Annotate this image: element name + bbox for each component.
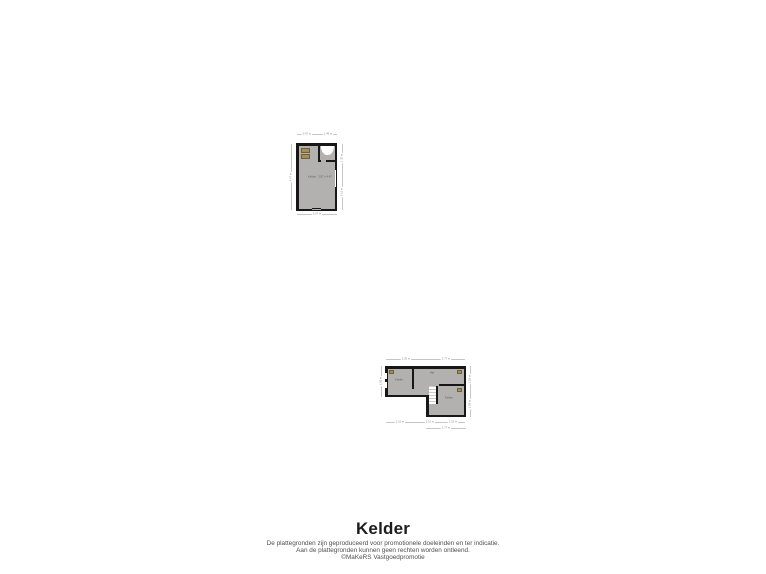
page-title: Kelder [0,520,766,538]
room-name: Kelder [308,175,316,178]
upper-plan-outline: Kelder 2.57 x 4.47 [296,143,337,211]
dimension-line [386,359,465,360]
page: 0.97 m 1.49 m 4.47 m 1.32 m 3.15 m [0,0,766,574]
disclaimer-line-2: Aan de plattegronden kunnen geen rechten… [0,547,766,554]
interior-wall [412,369,414,389]
interior-wall [326,160,335,162]
dimension-label: 1.52 m [448,421,459,424]
interior-wall [318,160,321,162]
dimension-label: 3.77 m [441,426,452,429]
dimension-label: 3.15 m [341,187,344,198]
dimension-label: 2.55 m [401,358,412,361]
interior-wall [436,386,439,404]
window [335,170,337,187]
fixture-icon [457,388,462,392]
fixture-icon [457,370,462,374]
dimension-label: 3.77 m [441,358,452,361]
room-label: Hal [430,371,434,374]
room-label: Kelder [445,397,453,400]
dimension-label: 4.47 m [290,172,293,183]
room-size-label: 2.57 x 4.47 [318,175,332,178]
interior-wall [439,384,464,387]
window [385,382,387,388]
disclaimer-line-3: ©MaKeRS Vastgoedpromotie [0,554,766,561]
dimension-label: 0.97 m [302,133,313,136]
appliance-icon [301,154,310,160]
appliance-icon [301,148,310,154]
room-label: Kelder [308,175,316,178]
dimension-label: 1.10 m [395,421,406,424]
disclaimer: De plattegronden zijn geproduceerd voor … [0,540,766,561]
upper-plan-floor: Kelder 2.57 x 4.47 [299,146,335,209]
fixture-icon [389,370,394,374]
room-size: 2.57 x 4.47 [318,175,332,178]
interior-wall [318,146,320,161]
dimension-label: 1.55 m [380,376,383,387]
dimension-label: 1.08 m [469,399,472,410]
dimension-label: 2.10 m [425,421,436,424]
dimension-label: 2.57 m [312,213,323,216]
window [385,373,387,379]
lower-plan-floor-band [388,369,464,395]
dimension-label: 1.55 m [469,374,472,385]
staircase [429,386,436,404]
door-opening [312,208,321,211]
room-label: Kelder [395,379,403,382]
door-swing-arc [321,146,334,156]
dimension-label: 1.32 m [341,153,344,164]
disclaimer-line-1: De plattegronden zijn geproduceerd voor … [0,540,766,547]
dimension-label: 1.49 m [323,133,334,136]
